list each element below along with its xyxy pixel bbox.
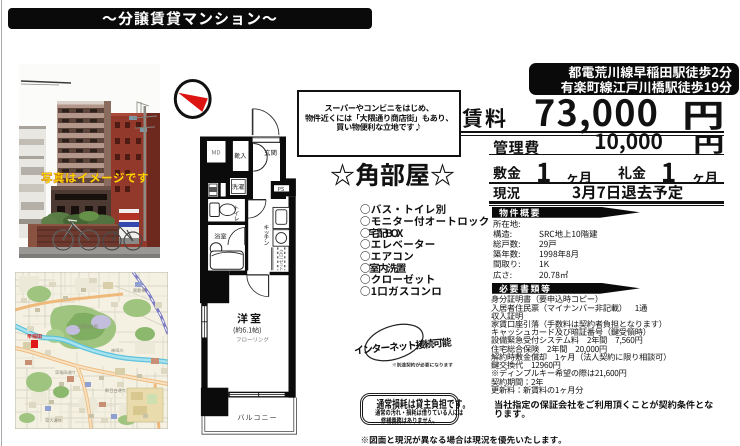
svg-text:洗濯: 洗濯: [232, 182, 244, 191]
svg-text:甘泉園公園: 甘泉園公園: [77, 323, 98, 330]
svg-text:早稲田: 早稲田: [27, 333, 42, 340]
svg-text:面影橋: 面影橋: [133, 287, 146, 294]
svg-text:玄関: 玄関: [264, 147, 277, 157]
svg-text:クローゼット: クローゼット: [278, 249, 284, 272]
svg-text:神田川: 神田川: [111, 347, 124, 354]
svg-text:バルコニー: バルコニー: [238, 413, 278, 423]
svg-text:洋室: 洋室: [237, 311, 263, 327]
svg-text:浴室: 浴室: [214, 232, 226, 241]
svg-text:MD: MD: [212, 148, 221, 157]
svg-text:靴入: 靴入: [234, 151, 246, 160]
svg-text:早稲田通り: 早稲田通り: [55, 370, 76, 376]
svg-text:(約6.1帖): (約6.1帖): [233, 326, 261, 336]
svg-text:写真はイメージです: 写真はイメージです: [41, 170, 149, 186]
svg-text:フローリング: フローリング: [236, 336, 270, 344]
svg-text:新目白通り: 新目白通り: [105, 387, 126, 394]
svg-text:早大通り: 早大通り: [45, 418, 62, 424]
svg-text:トイレ: トイレ: [232, 205, 241, 222]
svg-text:キッチン: キッチン: [262, 224, 271, 246]
svg-text:PS: PS: [278, 185, 285, 193]
